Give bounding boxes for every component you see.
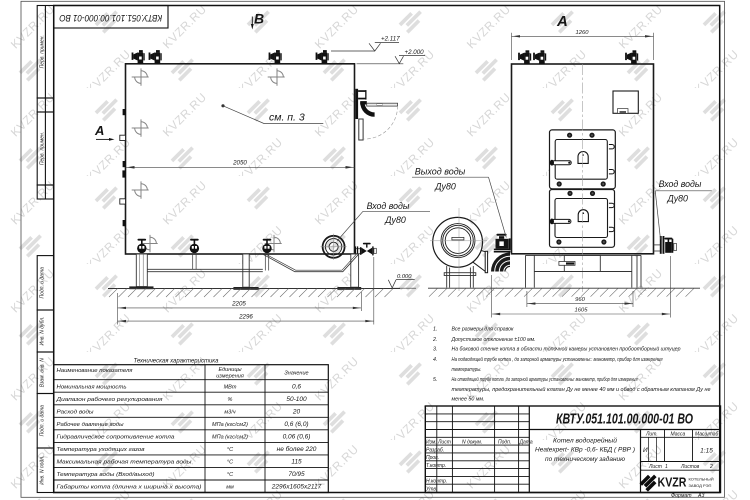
svg-text:%: % (228, 397, 233, 403)
svg-text:B: B (254, 11, 264, 27)
svg-text:960: 960 (575, 297, 585, 303)
svg-text:измерения: измерения (216, 374, 244, 380)
svg-text:°С: °С (227, 472, 233, 478)
svg-text:2.: 2. (432, 337, 437, 343)
svg-text:0,6: 0,6 (292, 384, 301, 391)
svg-text:Heatexpert- КВр -0,6- КБД ( РВ: Heatexpert- КВр -0,6- КБД ( РВР ) (535, 448, 635, 454)
svg-text:0,6 (6,0): 0,6 (6,0) (284, 421, 308, 428)
svg-text:А: А (556, 13, 568, 30)
svg-text:4.: 4. (433, 357, 437, 363)
svg-text:температуры, предохранительный: температуры, предохранительный клапан Ду… (452, 386, 711, 393)
svg-text:Ду80: Ду80 (434, 182, 456, 192)
svg-text:50-100: 50-100 (286, 396, 307, 403)
svg-text:Вход воды: Вход воды (367, 201, 410, 211)
svg-text:менее 50 мм.: менее 50 мм. (452, 397, 485, 403)
svg-text:Вход воды: Вход воды (659, 179, 702, 189)
svg-text:Инв. N дубл.: Инв. N дубл. (39, 317, 45, 346)
svg-text:КВТУ.051.101.00.000-01 ВО: КВТУ.051.101.00.000-01 ВО (59, 13, 162, 23)
svg-text:Ду80: Ду80 (384, 215, 406, 225)
svg-text:115: 115 (291, 459, 302, 466)
svg-text:Габариты котла (длинна х ширин: Габариты котла (длинна х ширина х высота… (57, 485, 202, 491)
svg-text:Единицы: Единицы (218, 367, 241, 373)
svg-text:Рабочее давление воды: Рабочее давление воды (57, 422, 124, 428)
svg-text:20: 20 (292, 409, 301, 416)
svg-text:Значение: Значение (284, 371, 308, 377)
svg-text:МВт: МВт (224, 385, 237, 391)
svg-text:температуры.: температуры. (452, 367, 482, 373)
svg-text:KVZR: KVZR (658, 476, 687, 490)
svg-text:Лист: Лист (648, 464, 662, 470)
svg-text:0,06 (0,6): 0,06 (0,6) (283, 434, 311, 441)
svg-text:Пров.: Пров. (426, 455, 439, 461)
svg-text:не более 220: не более 220 (277, 445, 317, 453)
svg-text:Наименование показателя: Наименование показателя (57, 368, 133, 374)
svg-text:1260: 1260 (576, 30, 590, 36)
svg-text:Допустимое отклонение ±100 мм: Допустимое отклонение ±100 мм. (451, 337, 536, 343)
svg-text:Листов: Листов (680, 464, 700, 470)
svg-text:Температура воды (Вход/выход): Температура воды (Вход/выход) (57, 472, 155, 478)
svg-text:Инв. N подл.: Инв. N подл. (39, 456, 45, 485)
svg-text:°С: °С (227, 460, 233, 466)
svg-text:Разраб.: Разраб. (426, 447, 444, 453)
svg-text:Ду80: Ду80 (666, 194, 688, 204)
svg-text:Масштаб: Масштаб (695, 431, 719, 437)
svg-text:Диапазон рабочего регулировани: Диапазон рабочего регулирования (55, 397, 162, 403)
svg-text:Все размеры для справок: Все размеры для справок (452, 327, 514, 333)
svg-text:Максимальная рабочая температу: Максимальная рабочая температура воды (57, 460, 192, 466)
svg-text:И: И (643, 447, 648, 454)
svg-text:Лит.: Лит. (645, 431, 658, 437)
svg-text:Котел водогрейный: Котел водогрейный (553, 438, 618, 445)
svg-text:Подп. и дата: Подп. и дата (39, 267, 45, 299)
svg-text:2: 2 (709, 464, 713, 470)
svg-text:А3: А3 (697, 493, 704, 499)
svg-text:ЗАВОД РЭП: ЗАВОД РЭП (689, 483, 712, 488)
svg-text:Выход воды: Выход воды (415, 167, 466, 177)
svg-text:КОТЕЛЬНЫЙ: КОТЕЛЬНЫЙ (689, 477, 714, 482)
svg-text:N докум.: N докум. (462, 440, 482, 446)
svg-text:1:15: 1:15 (700, 448, 713, 455)
svg-text:см. п. 3: см. п. 3 (269, 112, 305, 124)
svg-text:Дата: Дата (519, 440, 533, 446)
svg-text:70/95: 70/95 (288, 471, 305, 478)
svg-text:Техническая характеристика: Техническая характеристика (134, 358, 220, 364)
svg-text:мм: мм (226, 485, 234, 491)
svg-text:1.: 1. (433, 327, 437, 333)
svg-text:Перв. примен.: Перв. примен. (39, 35, 45, 68)
svg-text:Перв. примен.: Перв. примен. (39, 132, 45, 165)
svg-text:На боковой стенке котла в обла: На боковой стенке котла в области топочн… (452, 345, 681, 352)
svg-text:МПа (кгс/см2): МПа (кгс/см2) (212, 422, 248, 428)
svg-text:Подп.: Подп. (498, 440, 511, 446)
svg-text:2205: 2205 (231, 300, 246, 307)
svg-text:На подводящей трубе котла ,: На подводящей трубе котла , до запорной … (452, 356, 663, 363)
svg-text:На отводящей трубе котла ,до з: На отводящей трубе котла ,до запорной ар… (452, 376, 638, 383)
svg-text:°С: °С (227, 447, 233, 453)
svg-text:Номинальная мощность: Номинальная мощность (57, 385, 127, 391)
svg-text:2296х1605х2117: 2296х1605х2117 (271, 484, 322, 491)
svg-text:Формат: Формат (671, 493, 692, 499)
svg-text:Н.контр.: Н.контр. (426, 479, 447, 485)
svg-text:Подп. и дата: Подп. и дата (39, 405, 45, 437)
svg-text:1605: 1605 (575, 307, 589, 313)
svg-text:Расход воды: Расход воды (57, 410, 94, 416)
svg-text:Взам. инв. N: Взам. инв. N (39, 358, 45, 388)
svg-text:+2.000: +2.000 (405, 49, 425, 56)
svg-text:+2.117: +2.117 (381, 36, 400, 43)
svg-text:Температура уходящих газов: Температура уходящих газов (57, 447, 145, 453)
svg-text:МПа (кгс/см2): МПа (кгс/см2) (212, 435, 248, 441)
svg-text:Гидравлическое сопротивление к: Гидравлическое сопротивление котла (57, 435, 175, 441)
svg-text:2296: 2296 (238, 314, 253, 321)
svg-text:1: 1 (665, 464, 668, 470)
svg-text:3.: 3. (433, 346, 437, 352)
svg-text:Изм.: Изм. (426, 440, 437, 446)
svg-text:Утв.: Утв. (426, 486, 437, 492)
svg-text:Лист: Лист (437, 440, 451, 446)
svg-text:0.000: 0.000 (397, 274, 412, 280)
svg-text:КВТУ.051.101.00.000-01 ВО: КВТУ.051.101.00.000-01 ВО (556, 412, 693, 428)
svg-text:Масса: Масса (671, 431, 686, 437)
svg-text:по техническому заданию: по техническому заданию (545, 457, 626, 463)
svg-text:м3/ч: м3/ч (224, 410, 235, 416)
svg-text:5.: 5. (433, 377, 437, 383)
svg-text:А: А (94, 123, 104, 138)
svg-text:2050: 2050 (232, 160, 247, 167)
svg-text:Т.контр.: Т.контр. (426, 463, 446, 469)
